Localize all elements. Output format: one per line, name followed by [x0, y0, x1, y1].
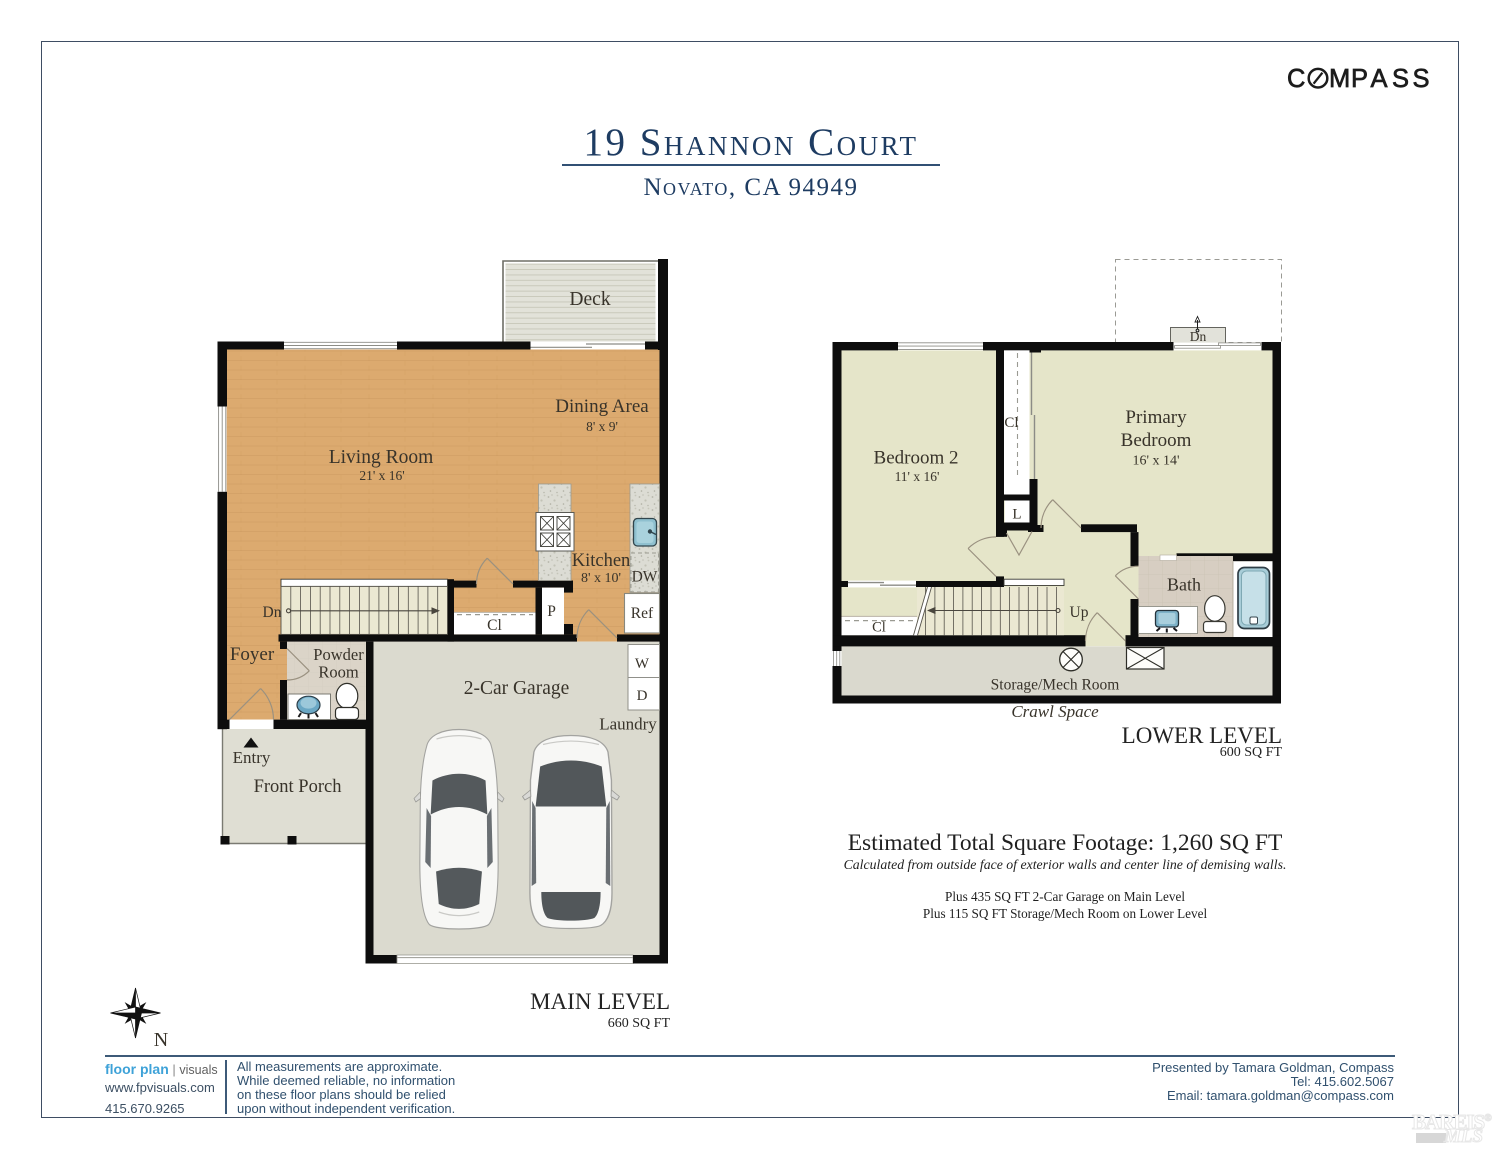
svg-text:Powder: Powder	[313, 645, 364, 664]
svg-text:Front Porch: Front Porch	[254, 777, 342, 797]
svg-text:2-Car Garage: 2-Car Garage	[464, 678, 570, 699]
svg-text:P: P	[547, 603, 556, 620]
svg-text:Room: Room	[318, 663, 359, 682]
svg-text:Up: Up	[1070, 604, 1089, 621]
svg-text:Laundry: Laundry	[599, 715, 657, 734]
svg-text:8' x 9': 8' x 9'	[586, 419, 618, 434]
svg-text:Foyer: Foyer	[230, 644, 275, 665]
svg-text:11' x 16': 11' x 16'	[895, 469, 940, 484]
svg-text:16' x 14': 16' x 14'	[1132, 454, 1179, 469]
svg-text:Storage/Mech Room: Storage/Mech Room	[991, 677, 1120, 694]
svg-text:D: D	[637, 688, 648, 704]
svg-text:N: N	[154, 1029, 168, 1051]
svg-text:Dining Area: Dining Area	[555, 396, 649, 417]
svg-text:Entry: Entry	[233, 748, 271, 767]
svg-text:8' x 10': 8' x 10'	[581, 571, 621, 586]
svg-text:Bedroom: Bedroom	[1121, 430, 1192, 451]
svg-text:Dn: Dn	[263, 604, 282, 621]
svg-text:Cl: Cl	[1004, 415, 1018, 431]
svg-text:21' x 16': 21' x 16'	[359, 468, 404, 483]
svg-text:Living Room: Living Room	[329, 447, 434, 468]
svg-text:Bedroom 2: Bedroom 2	[874, 448, 959, 469]
svg-text:DW: DW	[632, 569, 658, 586]
svg-text:Bath: Bath	[1167, 575, 1201, 595]
svg-text:Cl: Cl	[487, 617, 502, 634]
svg-text:Cl: Cl	[872, 620, 886, 636]
svg-text:W: W	[635, 656, 650, 672]
svg-text:L: L	[1012, 507, 1021, 523]
svg-text:Deck: Deck	[569, 289, 610, 310]
svg-text:Crawl Space: Crawl Space	[1011, 702, 1099, 721]
svg-text:Ref: Ref	[631, 605, 654, 622]
svg-text:Primary: Primary	[1125, 407, 1187, 428]
svg-text:Kitchen: Kitchen	[572, 551, 631, 571]
